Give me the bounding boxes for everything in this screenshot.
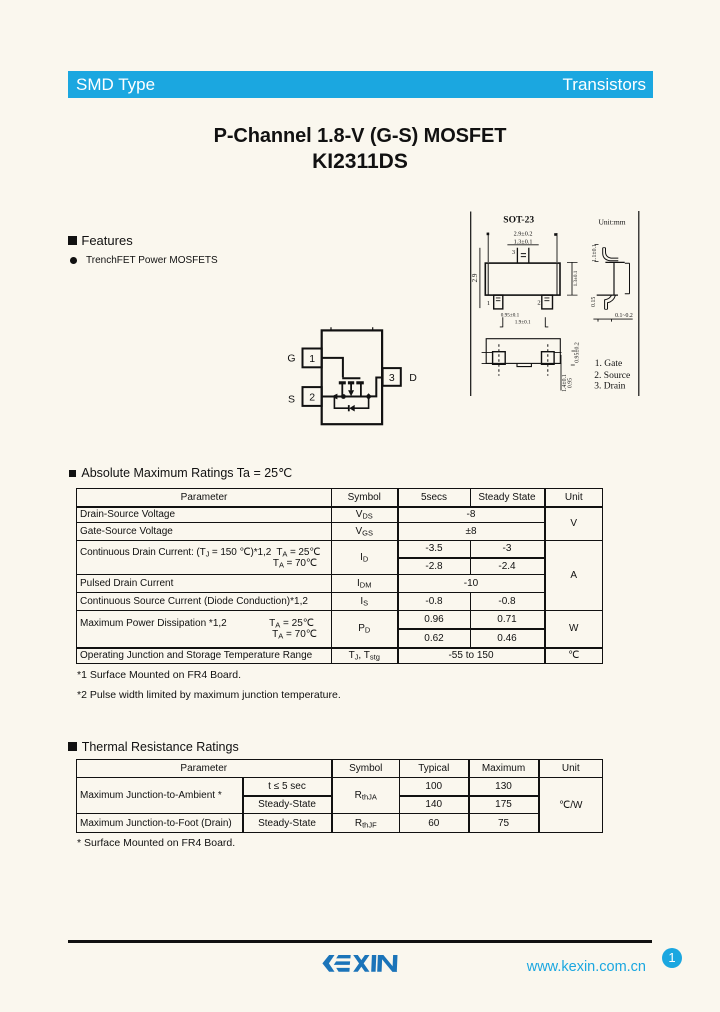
svg-text:D: D — [409, 372, 417, 384]
svg-text:G: G — [287, 353, 295, 365]
svg-text:1. Gate: 1. Gate — [595, 359, 622, 369]
svg-text:0.95±0.2: 0.95±0.2 — [574, 342, 580, 363]
svg-text:0.95±0.1: 0.95±0.1 — [501, 313, 520, 319]
svg-text:3. Drain: 3. Drain — [594, 382, 625, 392]
svg-text:2.9: 2.9 — [471, 273, 479, 282]
svg-text:S: S — [288, 393, 295, 405]
svg-text:1.3±0.1: 1.3±0.1 — [573, 270, 579, 286]
svg-text:3: 3 — [512, 249, 515, 256]
svg-text:2: 2 — [537, 300, 540, 307]
svg-text:3: 3 — [389, 372, 395, 384]
svg-text:2.9±0.2: 2.9±0.2 — [514, 231, 533, 238]
svg-text:SOT-23: SOT-23 — [503, 216, 534, 226]
svg-text:1.9±0.1: 1.9±0.1 — [515, 320, 531, 326]
svg-text:1: 1 — [487, 300, 490, 307]
svg-text:1: 1 — [309, 353, 315, 365]
svg-text:0.95: 0.95 — [567, 378, 573, 388]
svg-text:2. Source: 2. Source — [594, 371, 630, 381]
svg-text:1.1±0.1: 1.1±0.1 — [592, 244, 598, 262]
svg-text:1.3±0.1: 1.3±0.1 — [514, 239, 533, 246]
svg-text:2: 2 — [309, 392, 315, 404]
svg-text:0.15: 0.15 — [591, 297, 597, 307]
svg-text:0.1~0.2: 0.1~0.2 — [615, 313, 633, 319]
svg-text:Unit:mm: Unit:mm — [599, 218, 626, 227]
